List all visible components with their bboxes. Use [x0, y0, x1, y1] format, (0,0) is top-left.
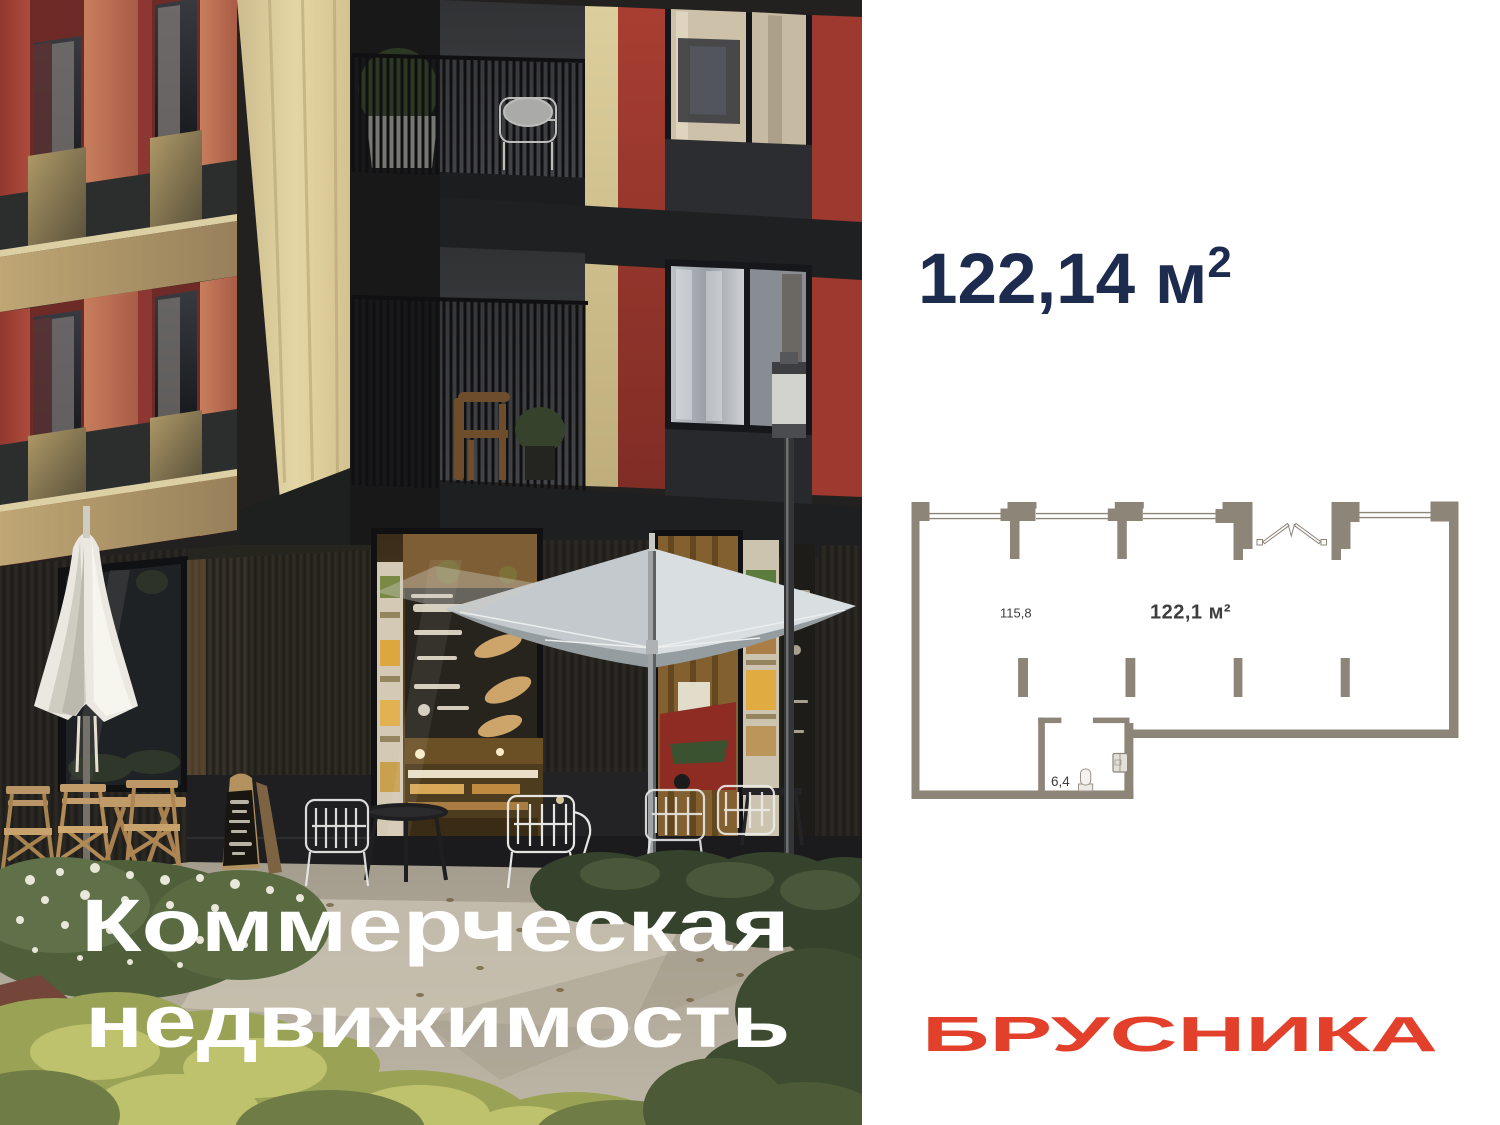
svg-text:6,4: 6,4 — [1051, 774, 1070, 789]
svg-text:122,1 м²: 122,1 м² — [1150, 602, 1231, 624]
svg-text:БРУСНИКА: БРУСНИКА — [922, 1008, 1438, 1062]
svg-text:115,8: 115,8 — [1000, 606, 1032, 621]
